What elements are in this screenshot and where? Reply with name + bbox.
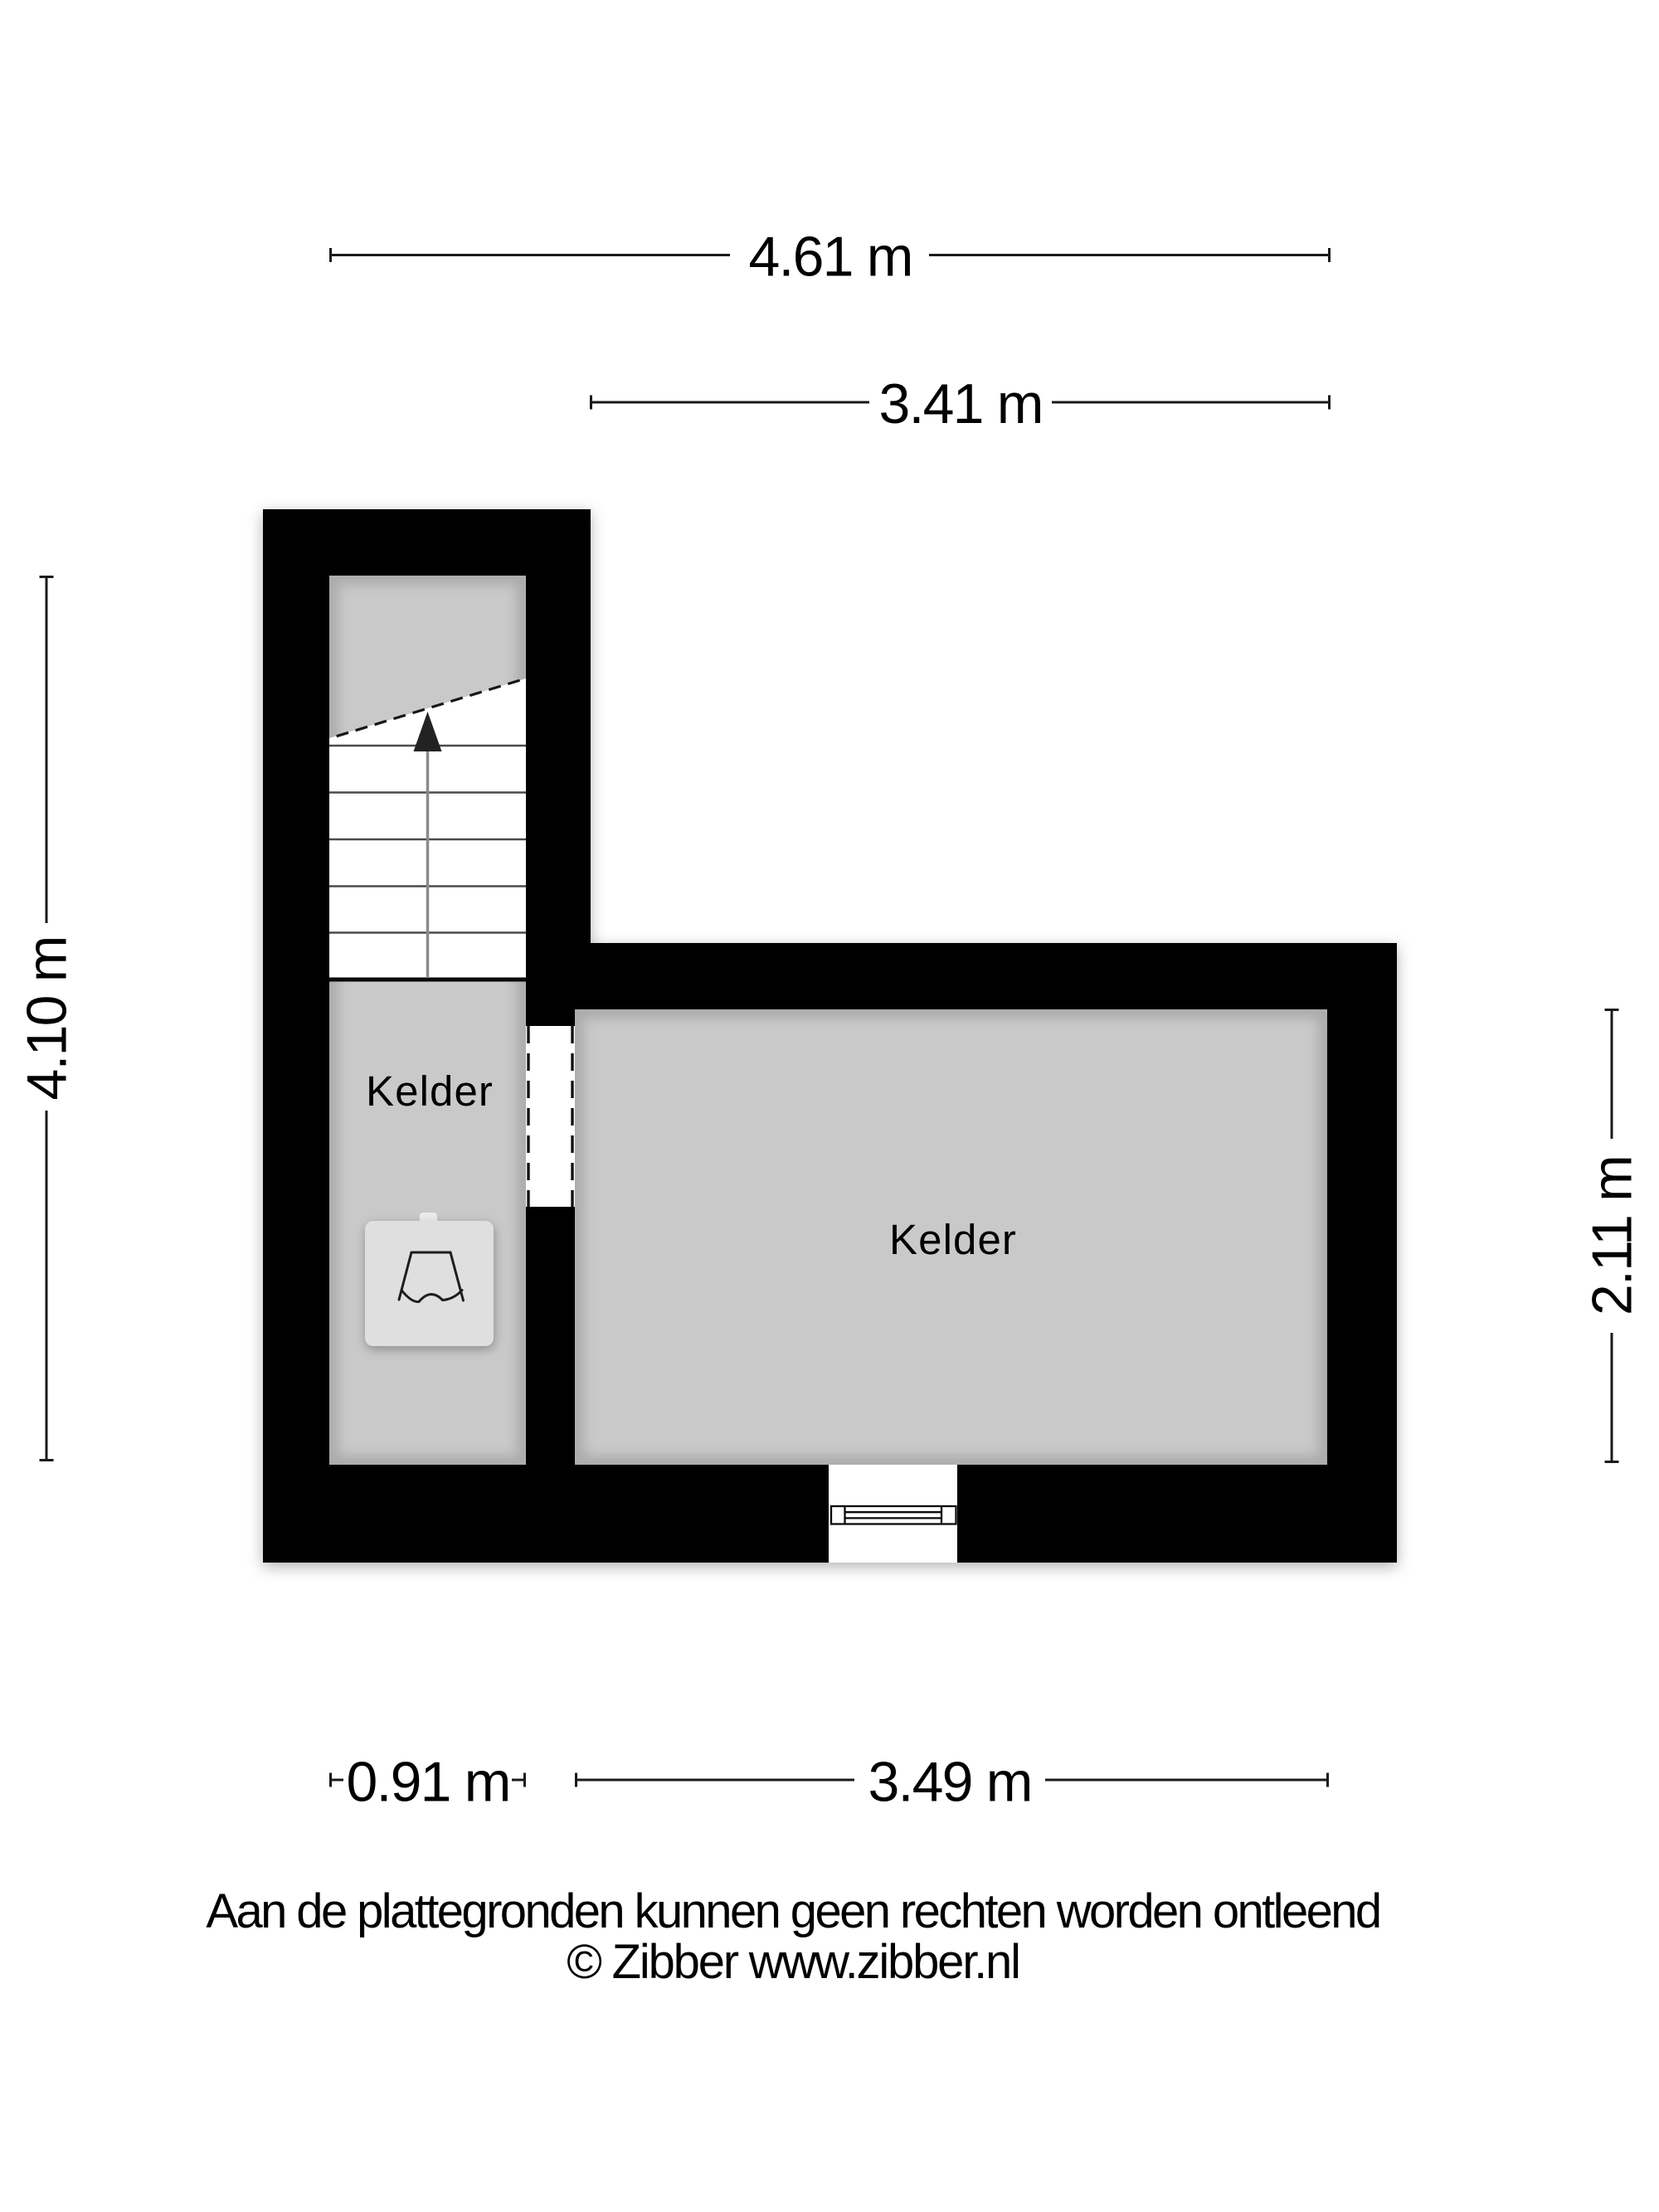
svg-text:2.11 m: 2.11 m [1581, 1156, 1644, 1315]
svg-text:3.49 m: 3.49 m [868, 1751, 1031, 1814]
svg-text:Aan de plattegronden kunnen ge: Aan de plattegronden kunnen geen rechten… [206, 1884, 1379, 1938]
svg-text:0.91 m: 0.91 m [346, 1751, 509, 1814]
svg-text:4.10 m: 4.10 m [16, 936, 79, 1100]
svg-text:Kelder: Kelder [366, 1067, 494, 1115]
svg-text:4.61 m: 4.61 m [748, 226, 912, 289]
svg-text:Kelder: Kelder [889, 1216, 1017, 1263]
svg-text:3.41 m: 3.41 m [878, 372, 1042, 435]
svg-text:© Zibber www.zibber.nl: © Zibber www.zibber.nl [567, 1935, 1019, 1989]
